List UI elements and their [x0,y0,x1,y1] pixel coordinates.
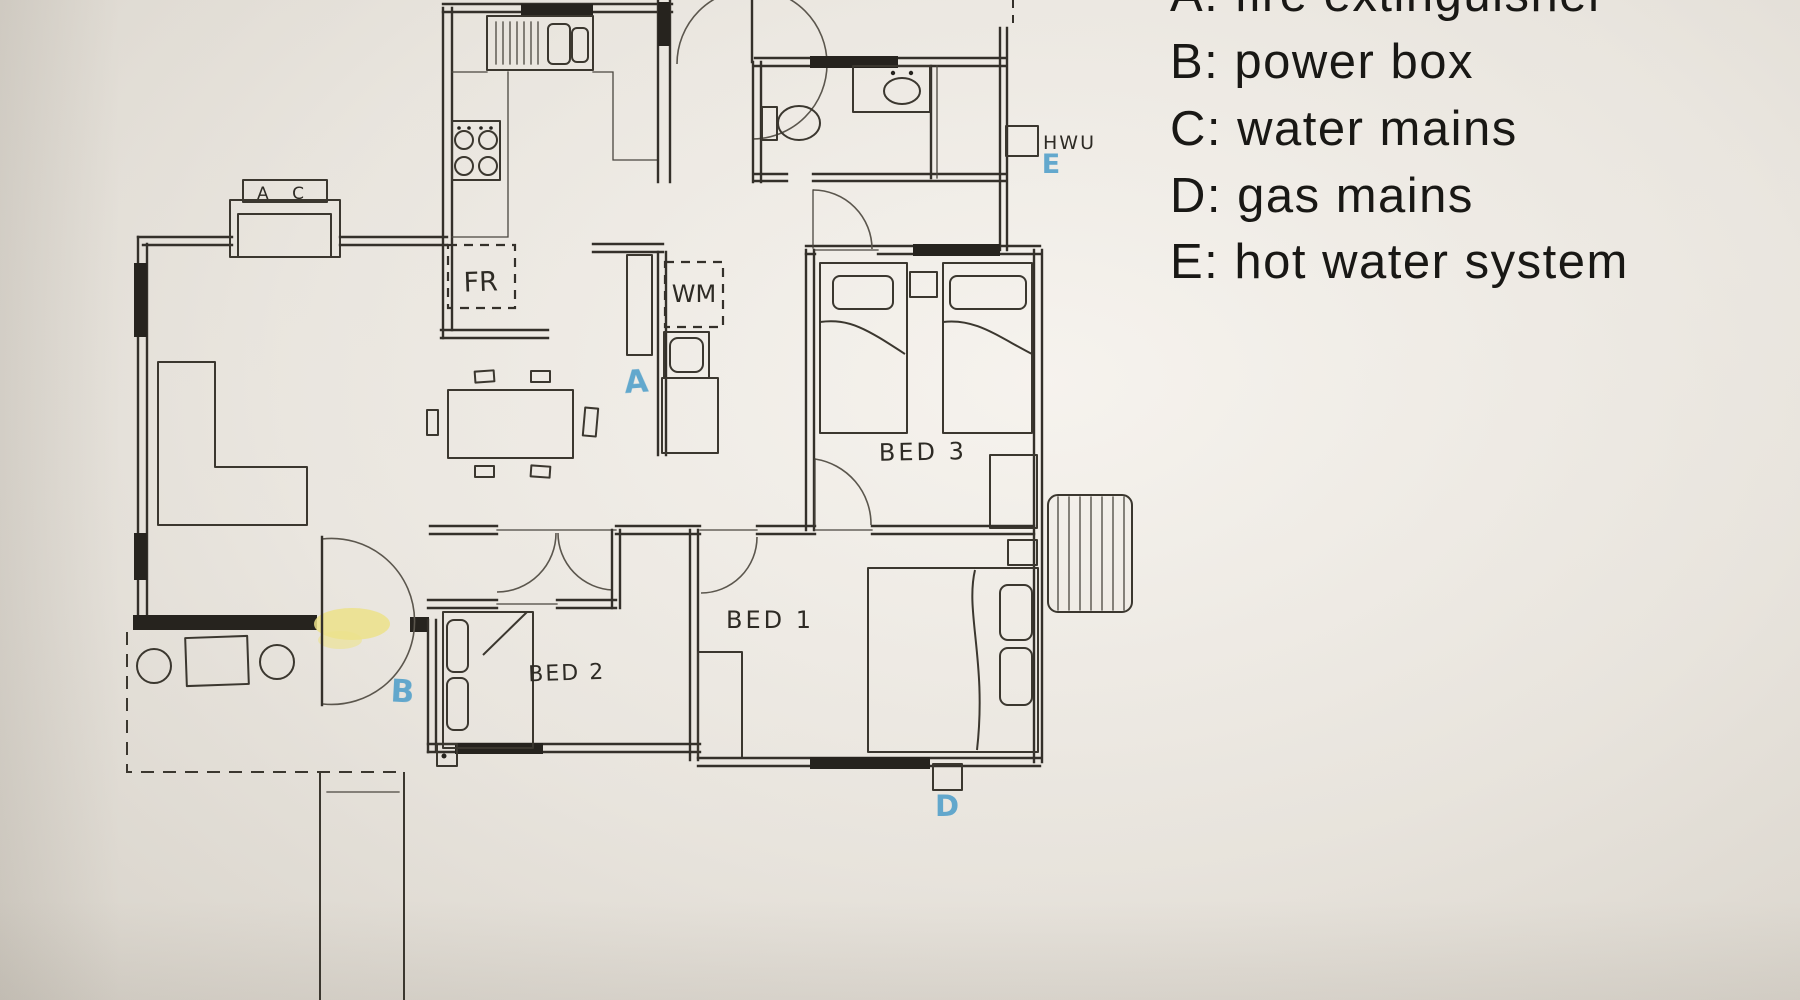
east-wall-top: HWU [1000,0,1096,250]
hall-door-arc-right [558,533,613,590]
marker-hot-water: E [1042,149,1060,180]
bed3-closet [990,455,1037,528]
marker-gas-mains: D [935,789,959,823]
hall-walls [430,459,1034,608]
legend-item-d: D: gas mains [1170,168,1790,226]
laundry-bench [662,378,718,453]
bed3-south-door-arc [815,459,871,525]
bed1-double-bed [868,568,1038,752]
bathroom-sink [853,66,930,112]
marker-power-box: B [390,673,415,710]
hot-water-unit [1006,126,1038,156]
legend-item-a: A: fire extinguisher [1170,0,1790,25]
dining-chair [531,465,551,477]
patio-stool-left [137,649,171,683]
bed2-label: BED 2 [528,660,606,688]
dining-area [427,370,598,477]
dining-chair [531,371,550,382]
living-room [133,180,447,632]
legend-item-b: B: power box [1170,34,1790,92]
bedside-table [1008,540,1037,565]
dining-chair [583,408,598,437]
dining-chair [475,466,494,477]
bed3-single-bed-right [943,263,1032,433]
bed3-label: BED 3 [879,437,967,467]
gas-meter-box [933,764,962,790]
kitchen-window [521,4,593,15]
window-left-1 [134,263,147,337]
washing-machine-label: WM [672,280,716,308]
marker-fire-extinguisher: A [623,363,649,401]
bed2-bed [443,612,533,748]
legend-item-c: C: water mains [1170,101,1790,159]
patio-table [185,636,249,686]
door-jamb [410,617,429,632]
hall-door-arc-left [497,533,556,592]
l-shaped-couch [158,362,307,525]
fridge-label: FR [463,266,498,298]
bed1-label: BED 1 [726,606,814,634]
dining-chair [427,410,438,435]
kitchen: FR [441,4,672,338]
bed3-single-bed-left [820,263,907,433]
patio [127,632,404,772]
bed1-closet [698,652,742,758]
bed1-door-arc [701,537,757,593]
outdoor-stairs [1048,495,1132,612]
window-left-2 [134,533,147,580]
bed3-window [913,244,1000,256]
stove [452,121,500,180]
ac-label: A C [257,184,313,204]
bedroom-1: BED 1 [690,530,1040,790]
laundry-nook: WM [593,244,723,455]
dining-table [448,390,573,458]
patio-boundary [127,632,404,772]
dining-chair [475,370,495,382]
bed1-window [810,757,930,769]
kitchen-sink [487,16,593,70]
patio-stool-right [260,645,294,679]
bathroom [753,56,1005,182]
bedroom-2: BED 2 [428,600,700,766]
hall-cupboard [627,255,652,355]
bed3-north-door-arc [813,190,872,249]
bedroom-3: BED 3 [806,190,1042,762]
nightstand [910,272,937,297]
entry [658,0,827,182]
legend-item-e: E: hot water system [1170,234,1790,292]
path-to-door [320,772,404,1000]
photo-of-floor-plan: { "legend": { "items": [ {"key": "A", "t… [0,0,1800,1000]
living-south-wall [133,615,317,630]
